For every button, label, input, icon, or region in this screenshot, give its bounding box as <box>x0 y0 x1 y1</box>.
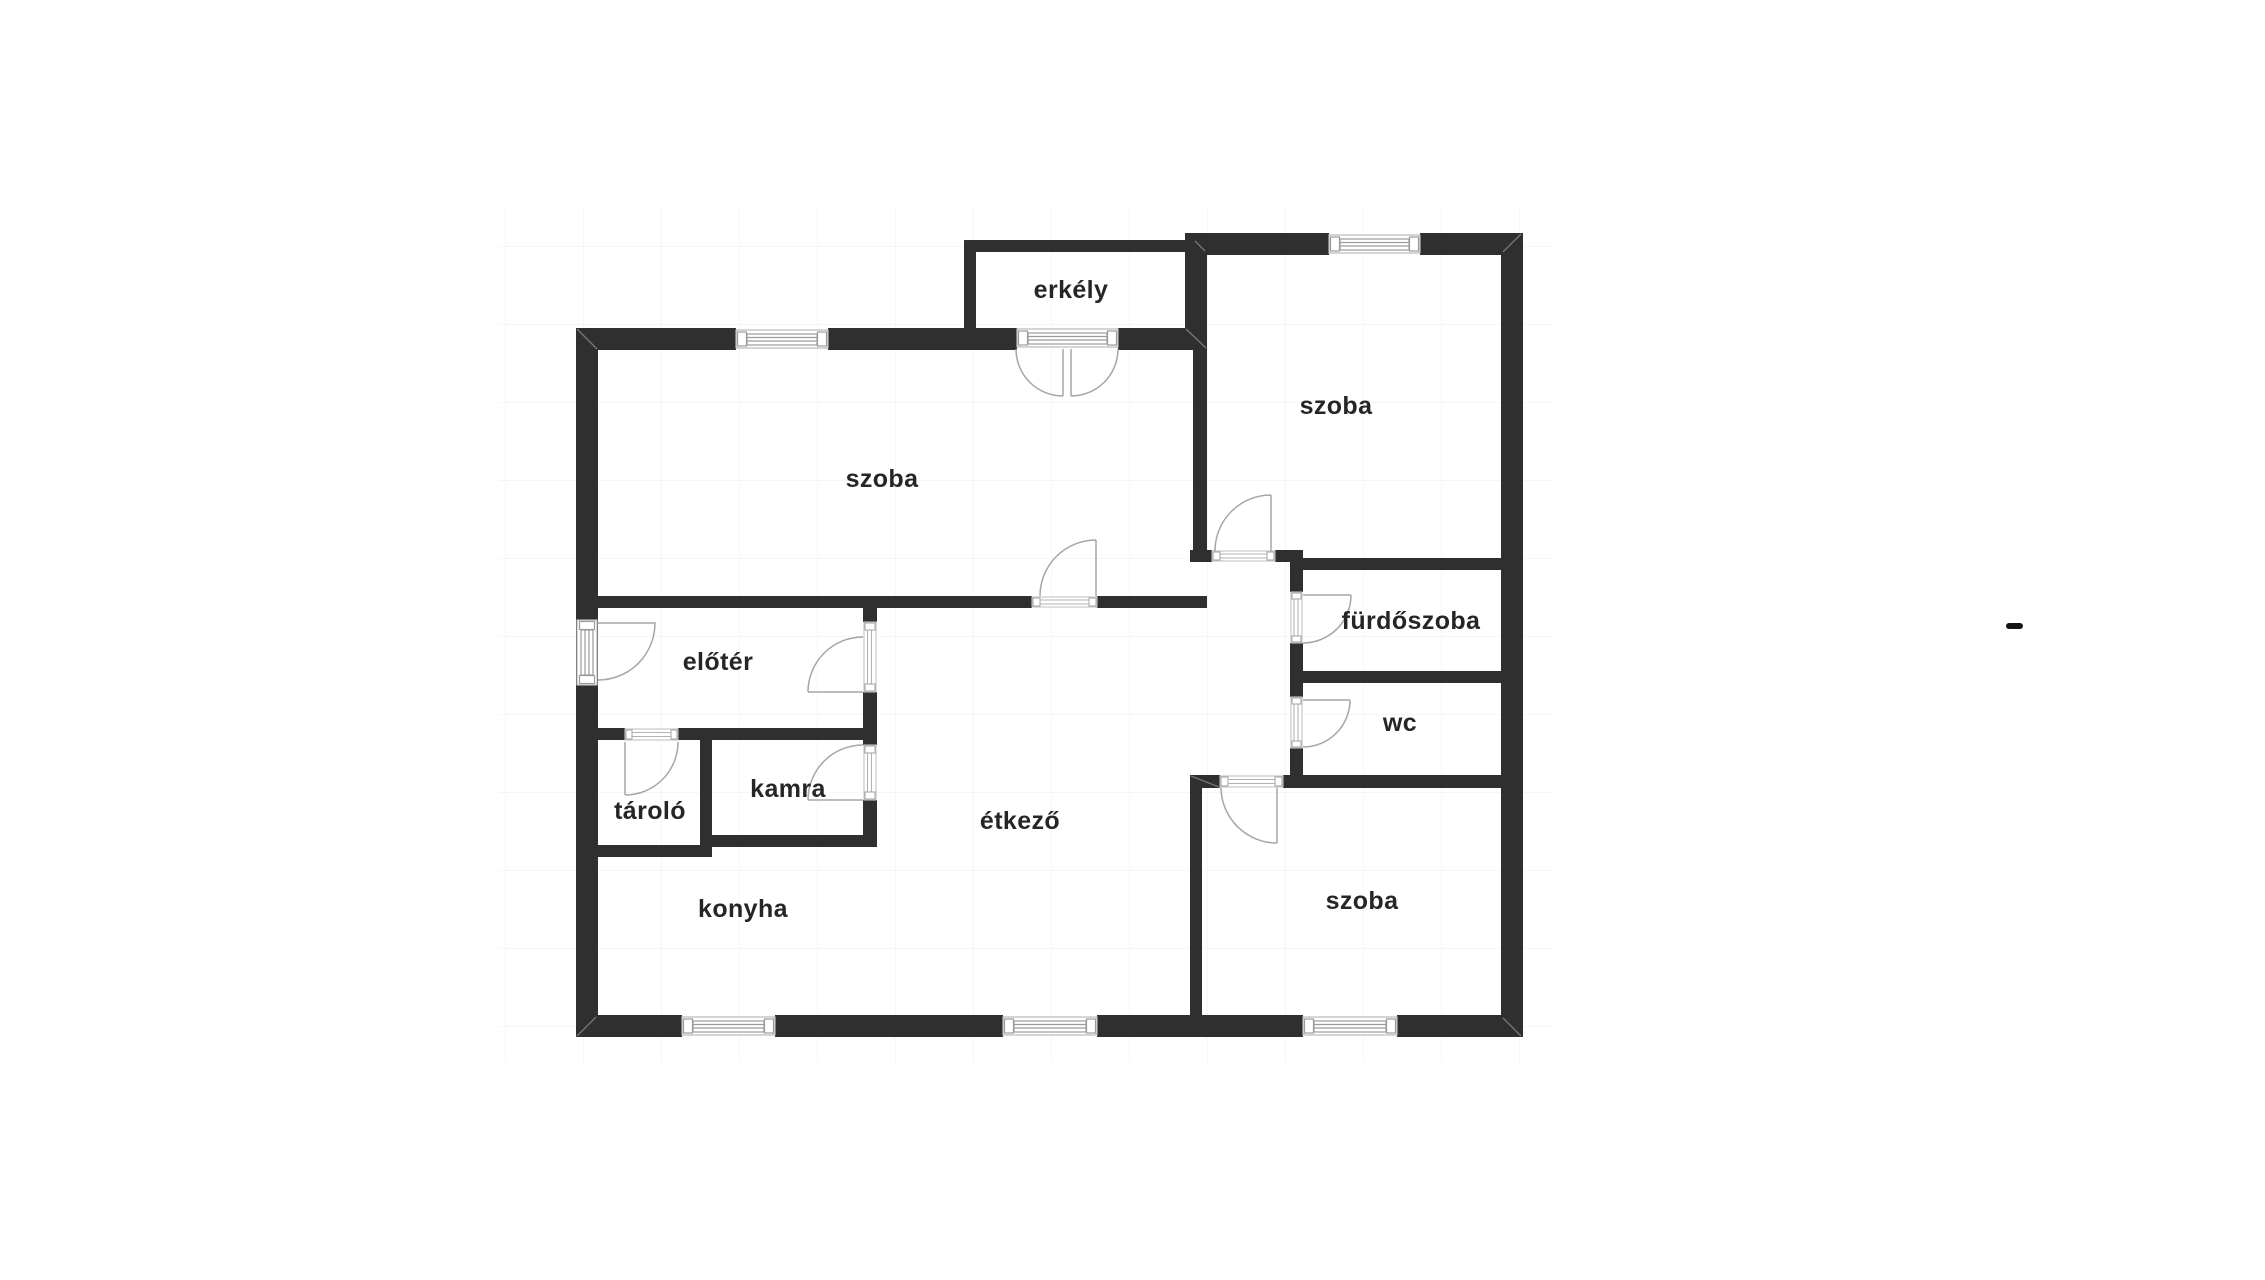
threshold-tarolo-door <box>625 729 678 740</box>
room-label-furdoszoba: fürdőszoba <box>1342 607 1481 635</box>
threshold-furdoszoba-door <box>1291 592 1302 643</box>
room-label-erkely: erkély <box>1034 276 1109 304</box>
threshold-kamra-door <box>864 745 876 800</box>
threshold-szoba-bottom-right-door <box>1220 776 1283 787</box>
dash-icon <box>2006 623 2023 629</box>
room-label-szoba-bottom-right: szoba <box>1326 887 1400 915</box>
window-szoba-bottom-right-icon <box>1303 1017 1397 1035</box>
balcony-door-sill-icon <box>1017 329 1118 347</box>
window-szoba-large-icon <box>736 330 828 348</box>
room-label-eloter: előtér <box>683 648 753 676</box>
threshold-szoba-large-door <box>1032 597 1097 607</box>
threshold-eloter-door <box>864 622 876 692</box>
window-etkezo-icon <box>1003 1017 1097 1035</box>
room-label-szoba-large: szoba <box>846 465 920 493</box>
entrance-door-sill-icon <box>577 620 597 685</box>
room-label-konyha: konyha <box>698 895 789 923</box>
floorplan-canvas: szoba szoba szoba erkély fürdőszoba wc é… <box>0 0 2265 1280</box>
window-konyha-icon <box>682 1017 775 1035</box>
room-label-szoba-top-right: szoba <box>1300 392 1374 420</box>
room-label-wc: wc <box>1382 709 1417 737</box>
threshold-szoba-top-right-door <box>1212 551 1275 561</box>
window-szoba-top-right-icon <box>1329 235 1420 253</box>
room-label-etkezo: étkező <box>980 807 1060 835</box>
room-label-kamra: kamra <box>750 775 826 803</box>
threshold-wc-door <box>1291 697 1302 748</box>
room-label-tarolo: tároló <box>614 797 686 825</box>
